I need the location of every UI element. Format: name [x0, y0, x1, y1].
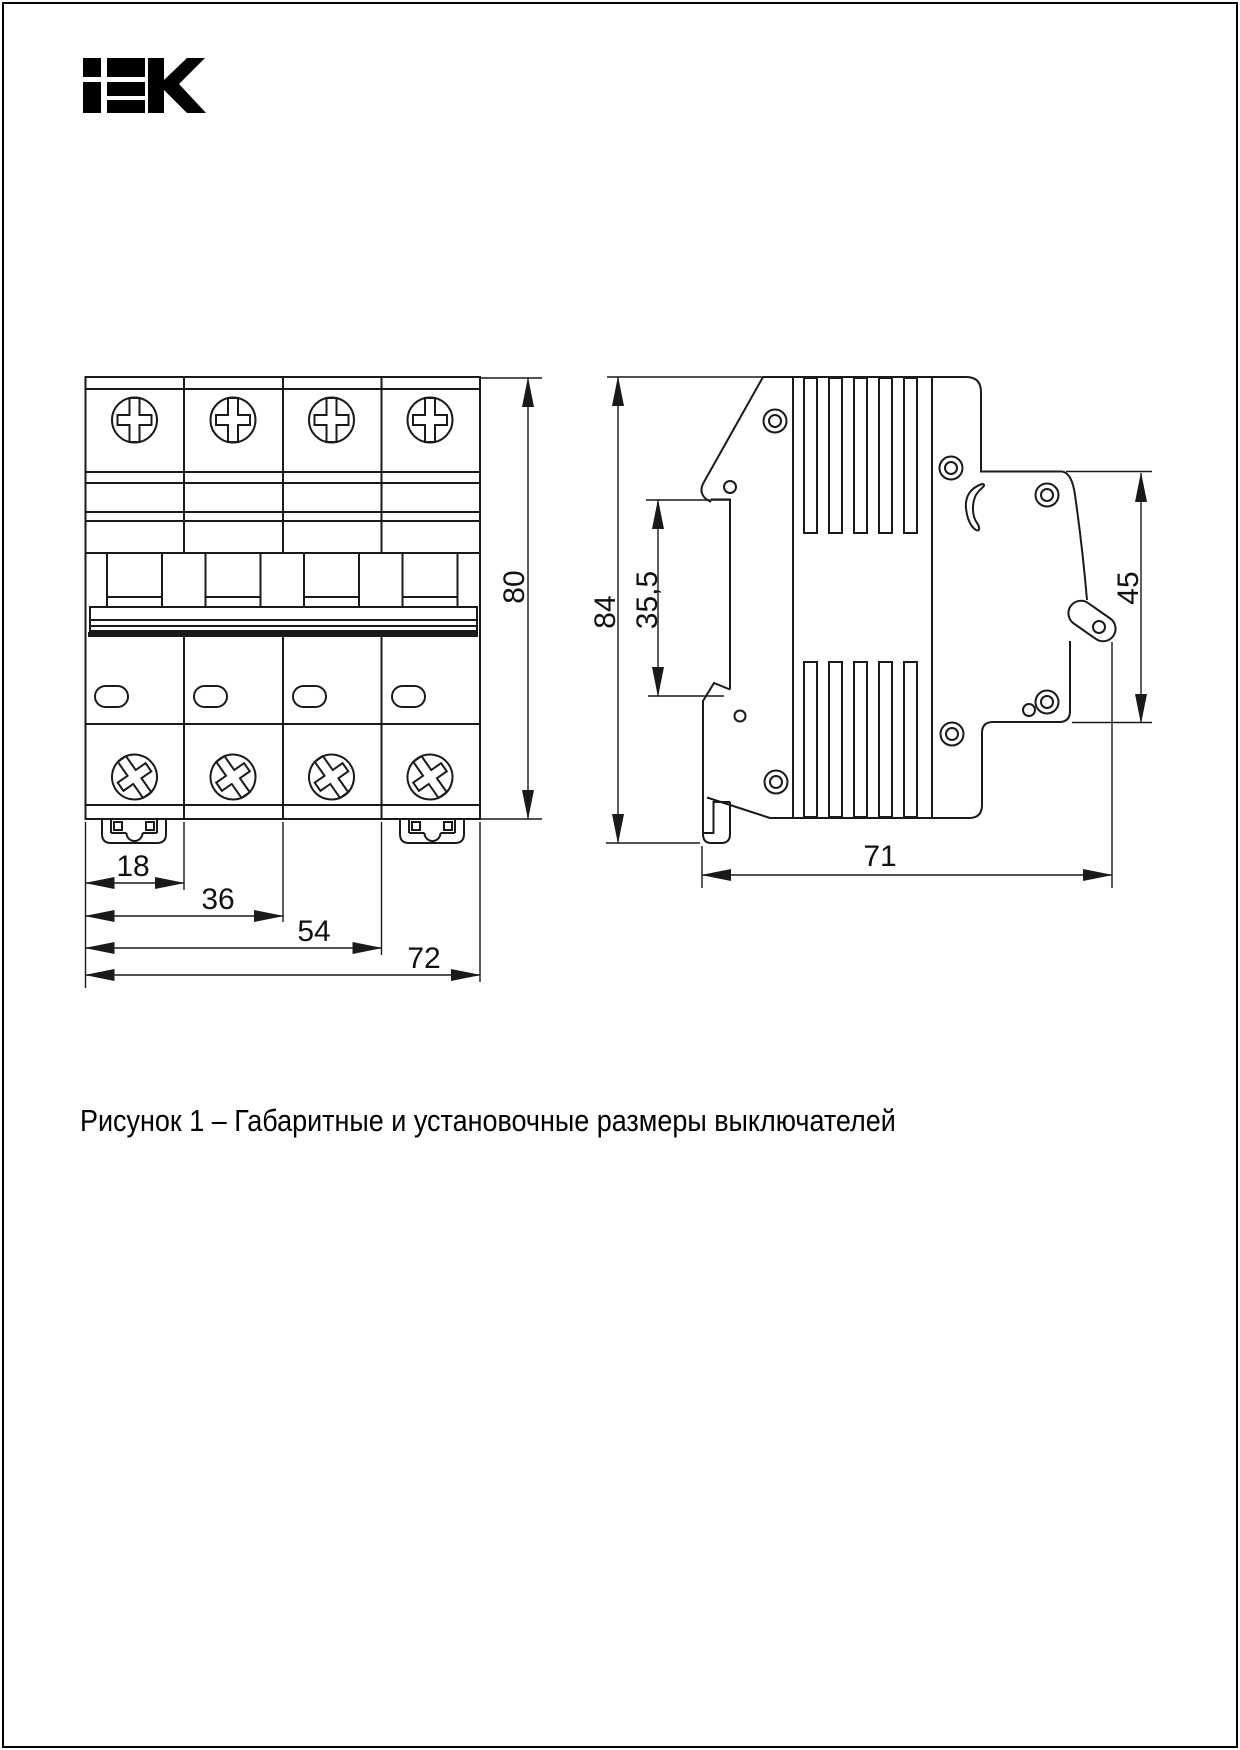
handle-tie-bar: [88, 607, 478, 635]
front-view: 18 36 54 72 80: [86, 377, 543, 988]
rivets: [764, 410, 1059, 794]
front-extension-lines: [86, 378, 543, 988]
dim-label-84: 84: [589, 595, 622, 628]
dim-label-36: 36: [201, 883, 234, 916]
vent-slots: [804, 378, 917, 817]
dim-label-71: 71: [863, 840, 896, 873]
dim-label-54: 54: [297, 915, 330, 948]
label-windows: [95, 686, 425, 707]
figure-caption: Рисунок 1 – Габаритные и установочные ра…: [80, 1103, 896, 1139]
side-view: 84 35,5 45 71: [589, 377, 1152, 888]
dim-label-72: 72: [407, 942, 440, 975]
dim-label-35-5: 35,5: [631, 571, 664, 629]
dim-label-80: 80: [498, 570, 531, 603]
kidney-slot: [966, 484, 984, 530]
toggle-paddles: [107, 553, 458, 607]
front-dimension-lines: [86, 378, 529, 975]
dim-label-18: 18: [116, 850, 149, 883]
datasheet-page: 18 36 54 72 80: [0, 0, 1240, 1750]
technical-drawing: 18 36 54 72 80: [0, 0, 1240, 1750]
side-body-outline: [701, 377, 1087, 843]
dim-label-45: 45: [1112, 571, 1145, 604]
